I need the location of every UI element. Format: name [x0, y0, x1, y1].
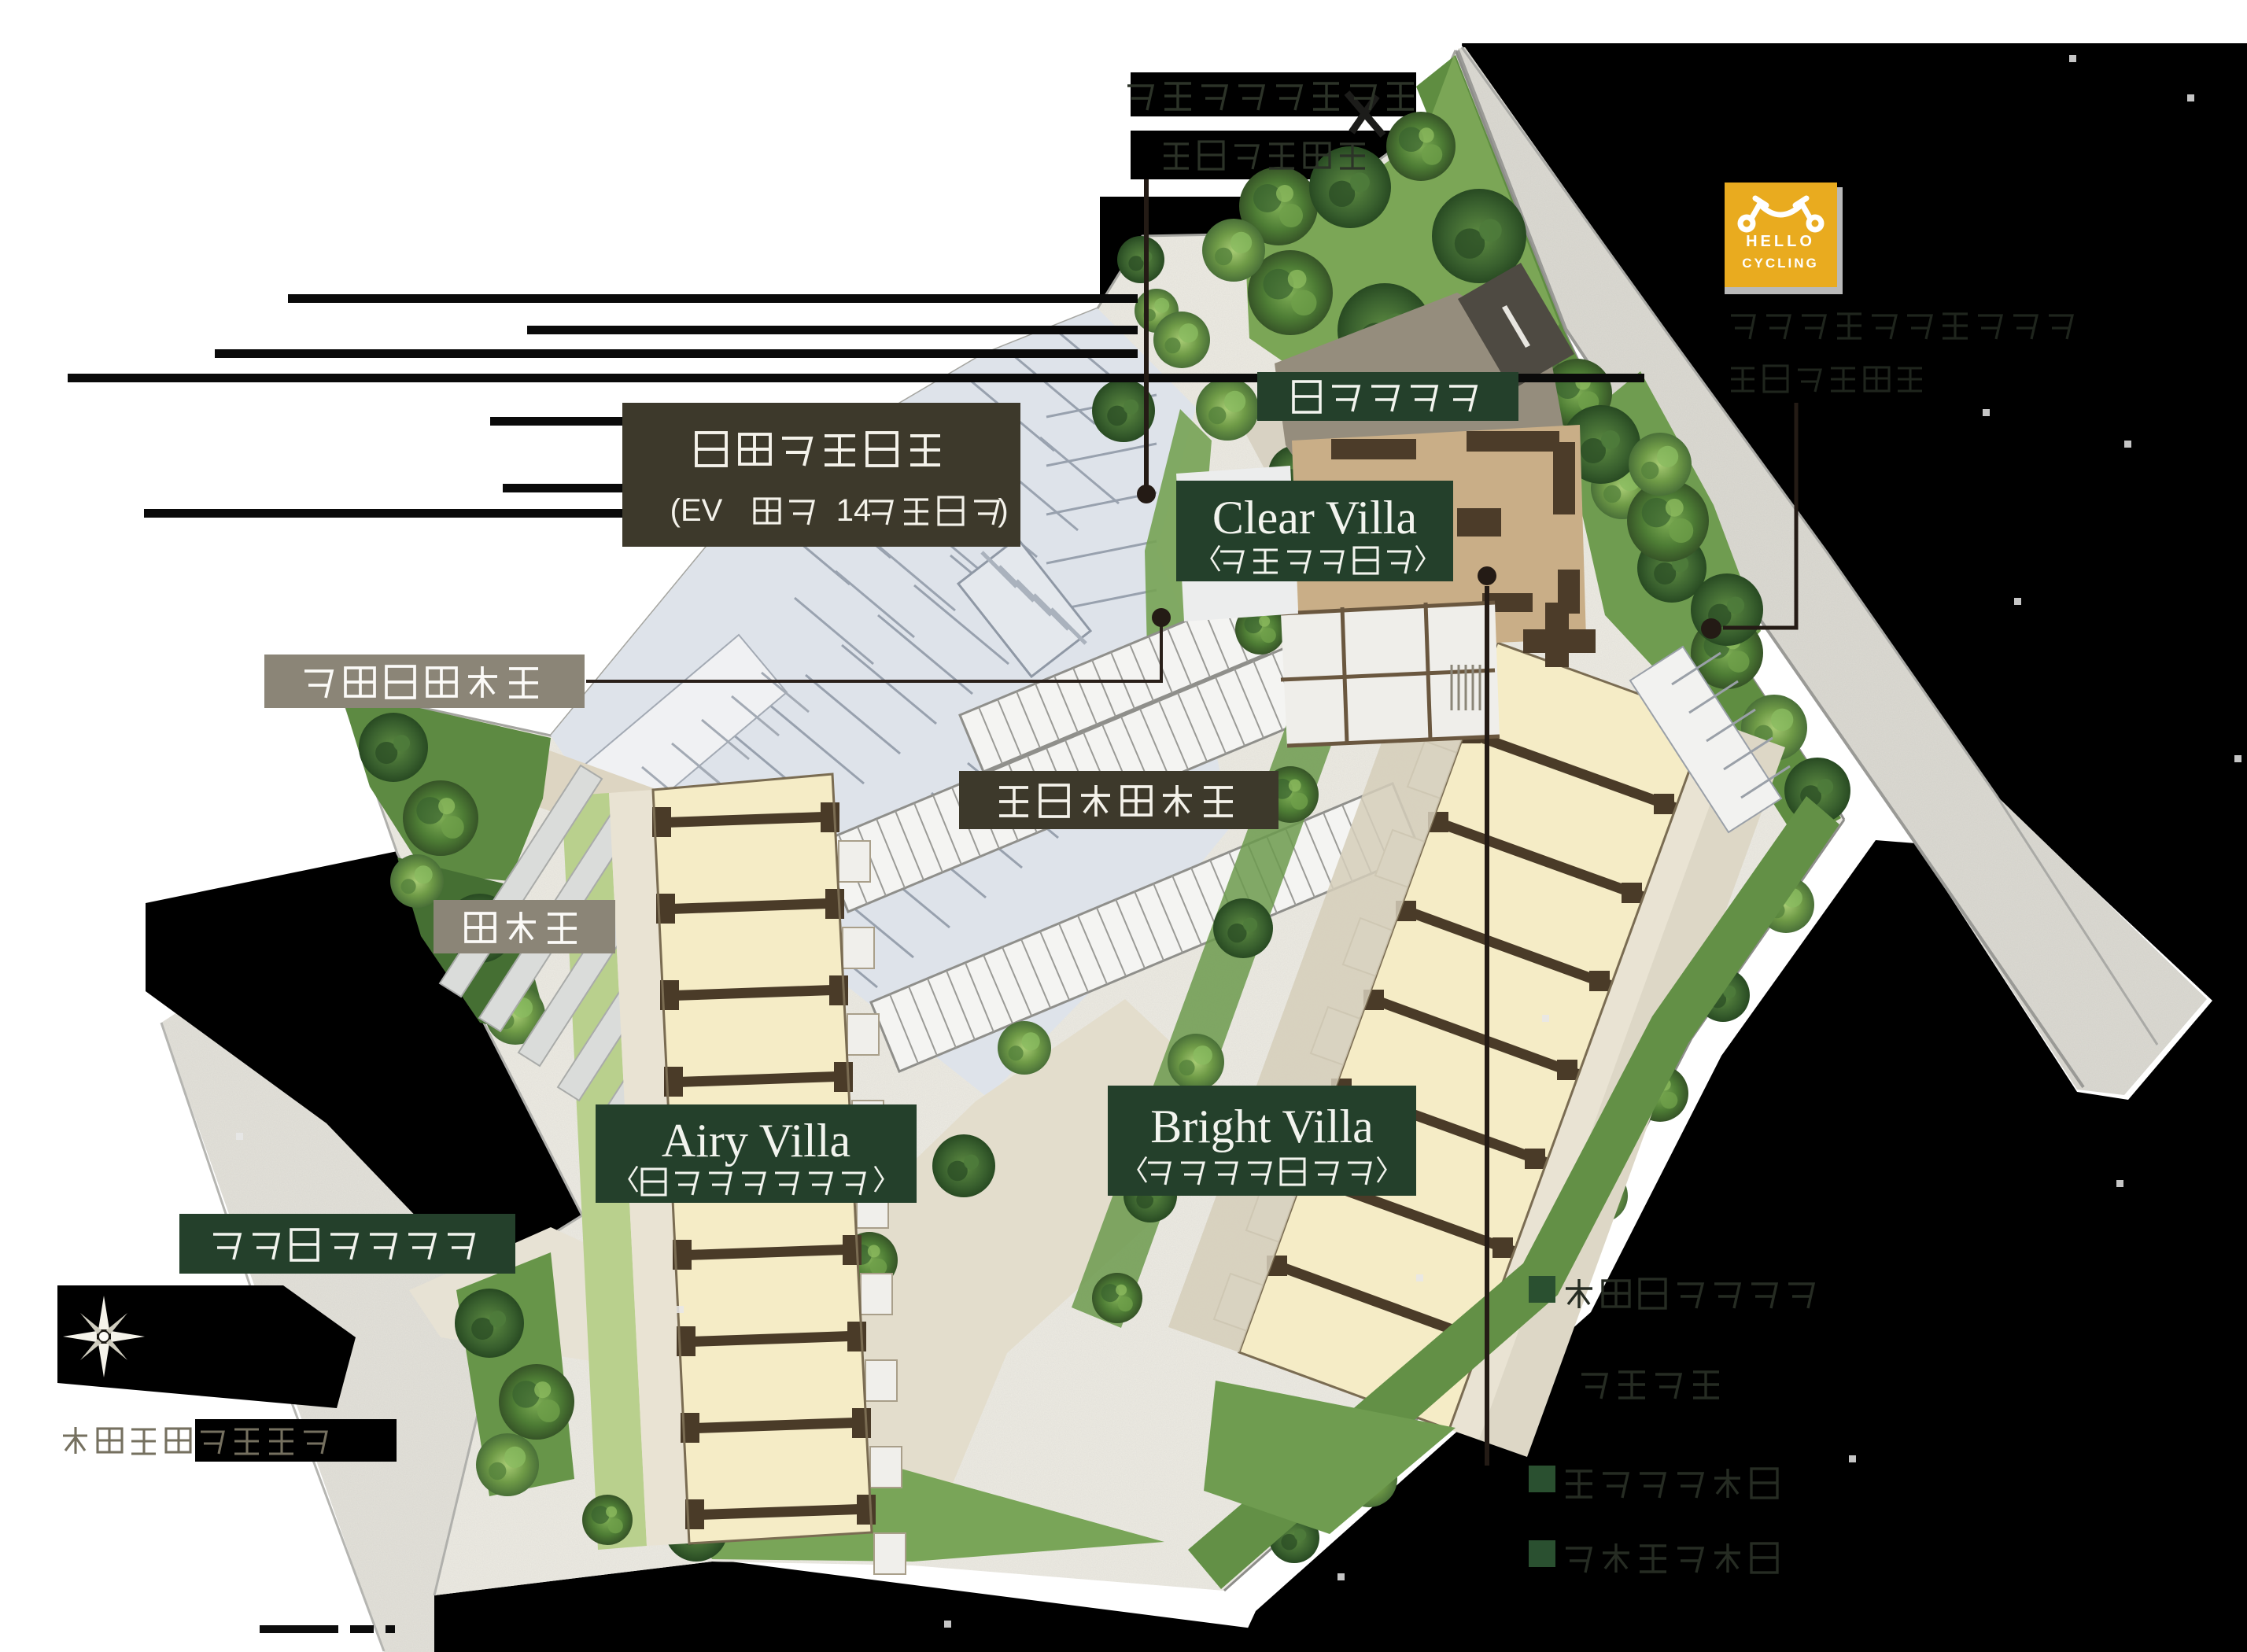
svg-text:〉: 〉: [873, 1163, 901, 1196]
svg-text:CYCLING: CYCLING: [1742, 256, 1819, 271]
svg-text:Clear Villa: Clear Villa: [1212, 492, 1417, 544]
svg-text:〉: 〉: [1414, 543, 1442, 575]
svg-text:Airy Villa: Airy Villa: [662, 1115, 850, 1167]
svg-text:(EV: (EV: [670, 493, 723, 528]
svg-text:14: 14: [836, 493, 872, 528]
svg-text:〈: 〈: [611, 1163, 640, 1196]
svg-text:HELLO: HELLO: [1746, 233, 1815, 250]
svg-text:〉: 〉: [1375, 1154, 1404, 1186]
svg-text:): ): [998, 493, 1008, 528]
svg-text:Bright Villa: Bright Villa: [1150, 1101, 1374, 1152]
svg-text:〈: 〈: [1120, 1154, 1149, 1186]
svg-text:〈: 〈: [1194, 543, 1222, 575]
